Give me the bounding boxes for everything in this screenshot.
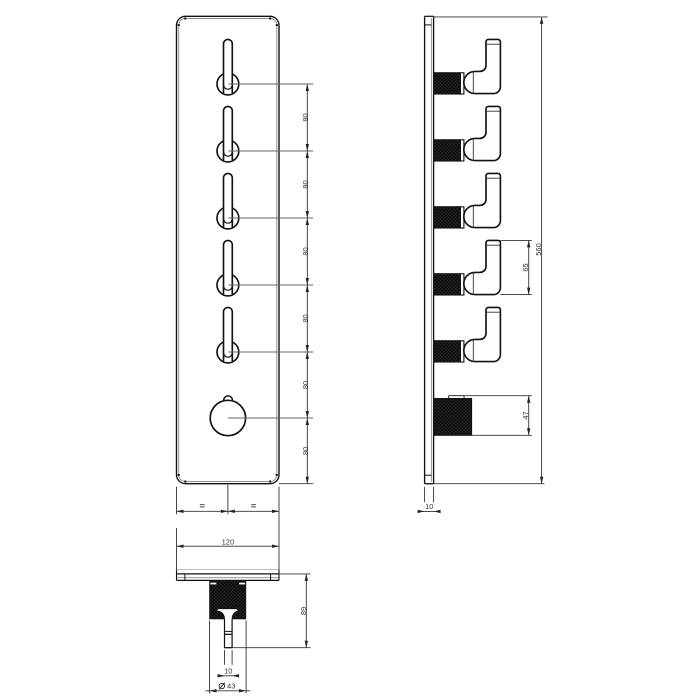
svg-text:80: 80 xyxy=(301,247,310,255)
svg-text:80: 80 xyxy=(301,180,310,188)
svg-text:560: 560 xyxy=(534,243,543,256)
svg-text:10: 10 xyxy=(425,502,433,511)
svg-text:65: 65 xyxy=(521,263,530,271)
svg-text:80: 80 xyxy=(301,314,310,322)
svg-text:47: 47 xyxy=(521,411,530,419)
svg-text:10: 10 xyxy=(224,667,232,676)
svg-text:43: 43 xyxy=(227,682,235,691)
svg-text:120: 120 xyxy=(222,537,235,546)
svg-text:80: 80 xyxy=(301,113,310,121)
svg-text:80: 80 xyxy=(301,381,310,389)
svg-text:89: 89 xyxy=(299,607,308,615)
svg-text:80: 80 xyxy=(301,447,310,455)
